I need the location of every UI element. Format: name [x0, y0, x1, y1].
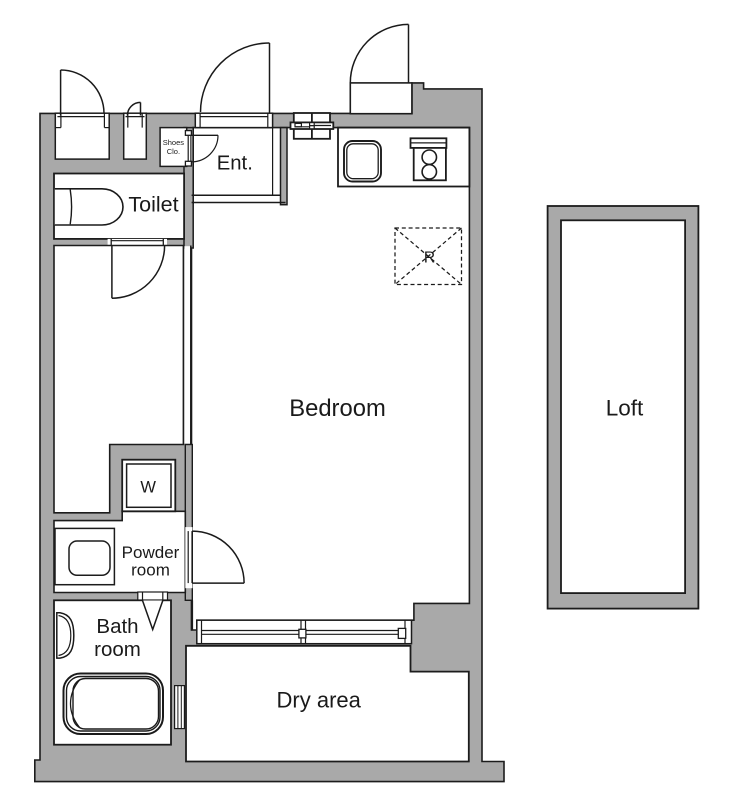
svg-text:Shoes: Shoes: [163, 138, 185, 147]
svg-text:Toilet: Toilet: [128, 192, 178, 216]
svg-text:room: room: [131, 561, 170, 580]
svg-text:Ent.: Ent.: [217, 153, 253, 175]
svg-text:Bath: Bath: [96, 615, 138, 638]
svg-text:room: room: [94, 638, 141, 661]
svg-text:Loft: Loft: [606, 396, 644, 421]
svg-text:W: W: [140, 479, 156, 497]
svg-text:Clo.: Clo.: [167, 147, 180, 156]
svg-text:Bedroom: Bedroom: [289, 395, 386, 422]
svg-text:Powder: Powder: [122, 543, 180, 562]
svg-text:R: R: [424, 250, 435, 267]
svg-text:Dry area: Dry area: [277, 687, 362, 712]
